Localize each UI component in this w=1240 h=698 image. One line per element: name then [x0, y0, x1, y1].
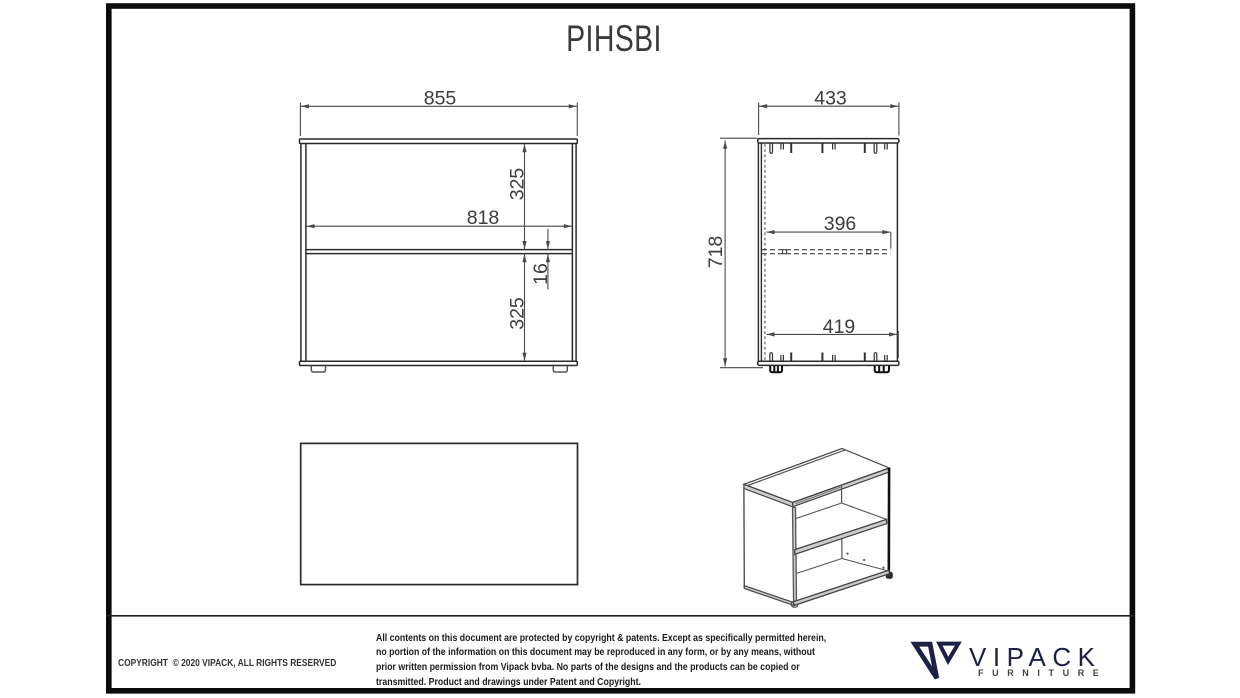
- svg-text:16: 16: [530, 263, 552, 285]
- svg-text:419: 419: [823, 316, 856, 338]
- svg-text:396: 396: [824, 213, 857, 235]
- svg-text:325: 325: [507, 297, 529, 330]
- svg-text:433: 433: [814, 88, 847, 110]
- svg-text:325: 325: [507, 168, 529, 201]
- svg-text:855: 855: [424, 88, 457, 110]
- svg-text:718: 718: [705, 236, 727, 269]
- svg-text:818: 818: [467, 207, 500, 229]
